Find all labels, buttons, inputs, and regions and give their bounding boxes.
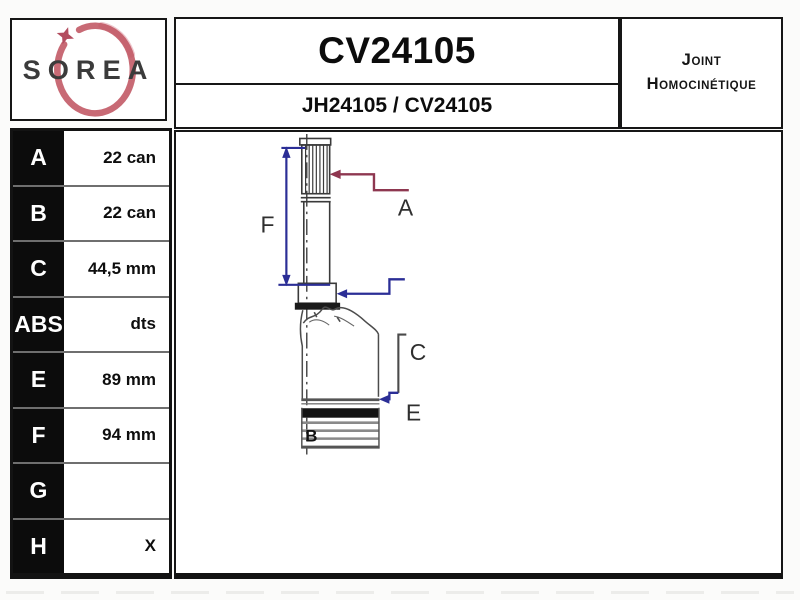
- row-label: ABS: [13, 298, 64, 352]
- category-line-2: Homocinétique: [647, 73, 757, 97]
- table-row: F 94 mm: [13, 409, 169, 465]
- leader-a: [330, 170, 409, 191]
- dimension-label-c: C: [410, 339, 427, 365]
- row-label: F: [13, 409, 64, 463]
- table-row: E 89 mm: [13, 353, 169, 409]
- category-box: Joint Homocinétique: [620, 17, 783, 129]
- row-value: 44,5 mm: [64, 242, 169, 296]
- table-row: G: [13, 464, 169, 520]
- row-value: dts: [64, 298, 169, 352]
- row-label: C: [13, 242, 64, 296]
- row-label: B: [13, 187, 64, 241]
- spline-hatching: [306, 145, 328, 193]
- row-value: 89 mm: [64, 353, 169, 407]
- category-line-1: Joint: [682, 49, 722, 73]
- leader-e: [379, 393, 398, 404]
- table-row: H X: [13, 520, 169, 574]
- row-value: [64, 464, 169, 518]
- part-number: CV24105: [318, 30, 476, 72]
- dimension-label-a: A: [398, 195, 414, 221]
- technical-drawing-box: B F A C: [174, 130, 783, 579]
- row-label: E: [13, 353, 64, 407]
- table-row: B 22 can: [13, 187, 169, 243]
- datasheet-page: SOREA CV24105 JH24105 / CV24105 Joint Ho…: [0, 0, 800, 600]
- dimension-label-b: B: [305, 427, 317, 446]
- bracket-c: [398, 335, 406, 393]
- row-value: 22 can: [64, 131, 169, 185]
- row-value: 22 can: [64, 187, 169, 241]
- part-header-box: CV24105 JH24105 / CV24105: [174, 17, 620, 129]
- table-row: ABS dts: [13, 298, 169, 354]
- spec-table: A 22 can B 22 can C 44,5 mm ABS dts E 89…: [10, 128, 172, 579]
- cross-reference: JH24105 / CV24105: [302, 94, 492, 118]
- table-row: C 44,5 mm: [13, 242, 169, 298]
- cv-joint-drawing: B F A C: [176, 132, 781, 573]
- row-label: G: [13, 464, 64, 518]
- row-value: X: [64, 520, 169, 574]
- cross-reference-row: JH24105 / CV24105: [176, 85, 618, 127]
- brand-logo-box: SOREA: [10, 18, 167, 121]
- brand-text: SOREA: [23, 54, 155, 85]
- leader-collar: [337, 279, 405, 298]
- dimension-label-f: F: [260, 212, 274, 238]
- row-label: H: [13, 520, 64, 574]
- table-row: A 22 can: [13, 131, 169, 187]
- row-label: A: [13, 131, 64, 185]
- row-value: 94 mm: [64, 409, 169, 463]
- brand-logo: SOREA: [12, 20, 165, 119]
- footer-dashed-line: [6, 591, 794, 594]
- dimension-label-e: E: [406, 400, 421, 426]
- cv-bell-housing: [300, 307, 379, 404]
- part-number-row: CV24105: [176, 19, 618, 85]
